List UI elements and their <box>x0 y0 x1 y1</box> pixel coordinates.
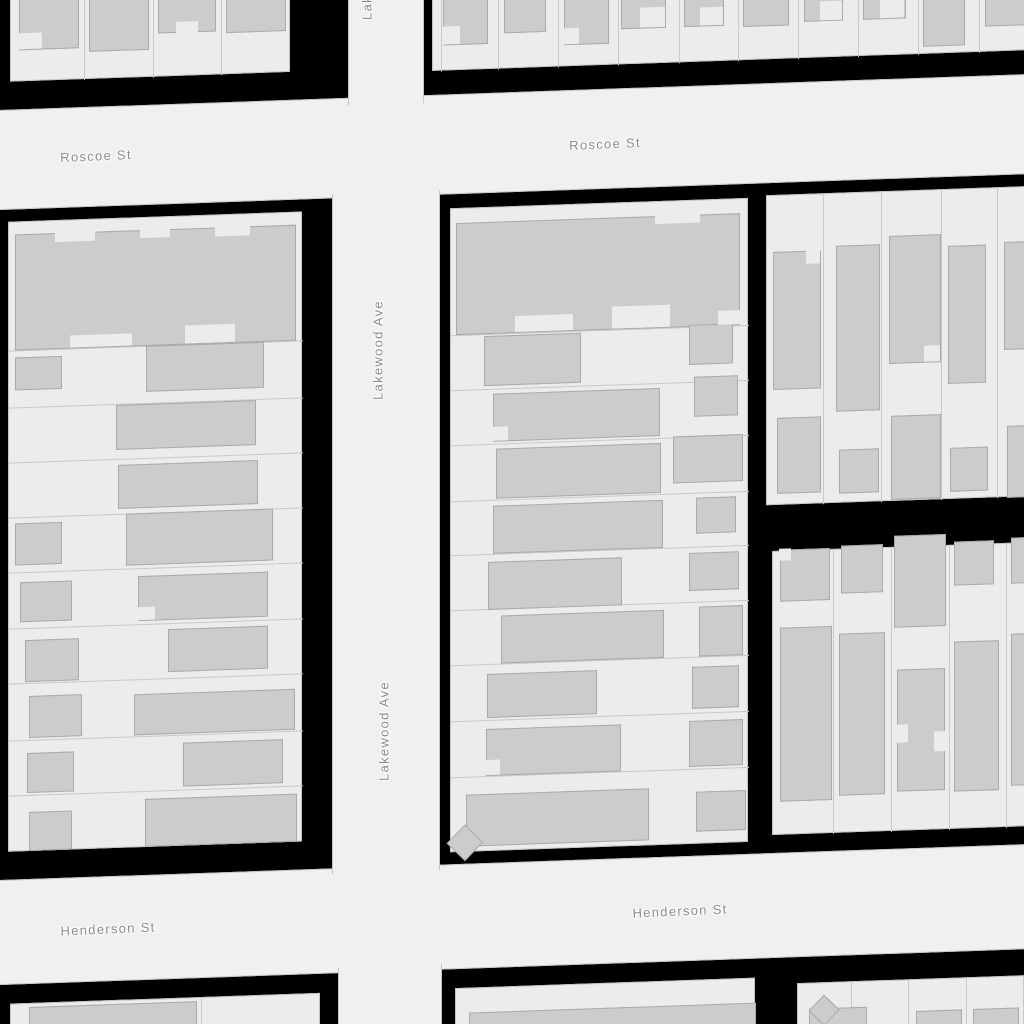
map-tile-layer <box>0 0 1024 1024</box>
parcel-divider-line <box>823 194 824 504</box>
building-notch <box>176 21 198 36</box>
building-footprint <box>777 416 821 494</box>
building-notch <box>779 548 791 560</box>
parcel-divider-line <box>997 188 998 498</box>
building-footprint <box>15 356 62 391</box>
building-footprint <box>146 342 264 392</box>
building-notch <box>70 333 132 347</box>
parcel-divider-line <box>858 0 859 57</box>
building-notch <box>700 7 723 26</box>
building-notch <box>215 225 250 236</box>
parcel-divider-line <box>918 0 919 55</box>
building-footprint <box>15 225 296 351</box>
building-footprint <box>694 375 738 417</box>
parcel-divider-line <box>84 0 85 80</box>
building-notch <box>515 314 573 332</box>
lakewood-ave-lower <box>338 964 442 1024</box>
building-footprint <box>486 724 621 776</box>
building-notch <box>806 249 820 263</box>
lakewood-ave-mid <box>332 191 440 875</box>
block-mid-center-parcels <box>450 198 748 852</box>
building-footprint <box>496 443 661 499</box>
building-footprint <box>836 244 880 412</box>
parcel-divider-line <box>618 0 619 65</box>
building-footprint <box>1011 536 1024 583</box>
building-notch <box>485 760 500 776</box>
building-notch <box>924 345 940 362</box>
building-notch <box>612 305 670 329</box>
building-footprint <box>692 665 739 709</box>
building-footprint <box>954 640 999 792</box>
building-notch <box>655 214 700 225</box>
building-footprint <box>696 790 746 832</box>
building-notch <box>442 26 460 45</box>
building-footprint <box>1004 240 1024 350</box>
block-mid-left-parcels <box>8 211 302 851</box>
building-footprint <box>923 0 965 47</box>
building-footprint <box>484 333 581 386</box>
building-footprint <box>839 448 879 493</box>
building-footprint <box>1011 632 1024 786</box>
parcel-divider-line <box>201 998 202 1024</box>
building-footprint <box>773 250 821 390</box>
building-notch <box>185 324 235 344</box>
building-footprint <box>456 213 740 335</box>
building-footprint <box>226 0 286 33</box>
block-right-upper-parcels <box>766 185 1024 505</box>
building-footprint <box>699 605 743 657</box>
parcel-divider-line <box>558 0 559 68</box>
block-top-left-parcels <box>10 0 290 82</box>
parcel-divider-line <box>908 980 909 1024</box>
building-footprint <box>673 434 743 483</box>
building-footprint <box>504 0 546 33</box>
building-footprint <box>118 460 258 509</box>
building-footprint <box>891 414 941 500</box>
building-notch <box>896 724 908 742</box>
parcel-divider-line <box>949 546 950 830</box>
building-footprint <box>134 689 295 736</box>
building-footprint <box>493 500 663 554</box>
parcel-divider-line <box>798 0 799 59</box>
building-footprint <box>138 572 268 622</box>
building-footprint <box>89 0 149 52</box>
parcel-divider-line <box>9 452 303 463</box>
building-notch <box>820 1 842 21</box>
parcel-divider-line <box>833 550 834 834</box>
building-footprint <box>15 522 62 566</box>
building-footprint <box>948 245 986 384</box>
building-footprint <box>487 670 597 718</box>
building-footprint <box>126 508 273 565</box>
building-footprint <box>689 323 733 365</box>
building-footprint <box>27 751 74 793</box>
block-right-lower-parcels <box>772 541 1024 835</box>
map-canvas[interactable]: Roscoe StRoscoe StHenderson StHenderson … <box>0 0 1024 1024</box>
parcel-divider-line <box>738 0 739 61</box>
building-notch <box>563 28 579 45</box>
building-footprint <box>29 694 82 738</box>
building-footprint <box>29 1001 197 1024</box>
building-footprint <box>696 496 736 533</box>
parcel-divider-line <box>1006 544 1007 828</box>
building-footprint <box>145 794 297 847</box>
building-footprint <box>743 0 789 27</box>
parcel-divider-line <box>881 192 882 502</box>
parcel-divider-line <box>966 978 967 1024</box>
building-footprint <box>116 400 256 450</box>
building-footprint <box>466 788 649 846</box>
building-footprint <box>501 610 664 664</box>
building-notch <box>934 731 946 751</box>
parcel-divider-line <box>679 0 680 63</box>
building-footprint <box>841 544 883 593</box>
building-footprint <box>20 580 72 622</box>
building-footprint <box>973 1007 1019 1024</box>
building-notch <box>18 33 42 50</box>
parcel-divider-line <box>891 548 892 832</box>
building-footprint <box>488 557 622 610</box>
building-footprint <box>689 551 739 591</box>
building-notch <box>640 7 665 28</box>
building-notch <box>718 310 740 325</box>
building-footprint <box>950 446 988 491</box>
lakewood-ave-upper <box>348 0 424 106</box>
building-footprint <box>493 388 660 442</box>
building-footprint <box>1007 424 1024 497</box>
parcel-divider-line <box>498 0 499 70</box>
building-notch <box>140 228 170 238</box>
parcel-divider-line <box>221 0 222 75</box>
building-notch <box>55 231 95 242</box>
building-footprint <box>839 632 885 796</box>
building-notch <box>492 426 508 441</box>
parcel-divider-line <box>979 0 980 53</box>
building-footprint <box>916 1009 962 1024</box>
building-footprint <box>689 719 743 767</box>
parcel-divider-line <box>153 0 154 78</box>
building-notch <box>880 0 904 18</box>
building-footprint <box>25 638 79 682</box>
building-notch <box>137 607 155 621</box>
parcel-divider-line <box>941 190 942 500</box>
building-footprint <box>780 626 832 802</box>
building-footprint <box>29 810 72 851</box>
building-footprint <box>183 739 283 786</box>
building-footprint <box>954 540 994 585</box>
building-footprint <box>469 1003 756 1024</box>
building-footprint <box>894 534 946 628</box>
building-footprint <box>985 0 1024 27</box>
building-footprint <box>168 626 268 672</box>
